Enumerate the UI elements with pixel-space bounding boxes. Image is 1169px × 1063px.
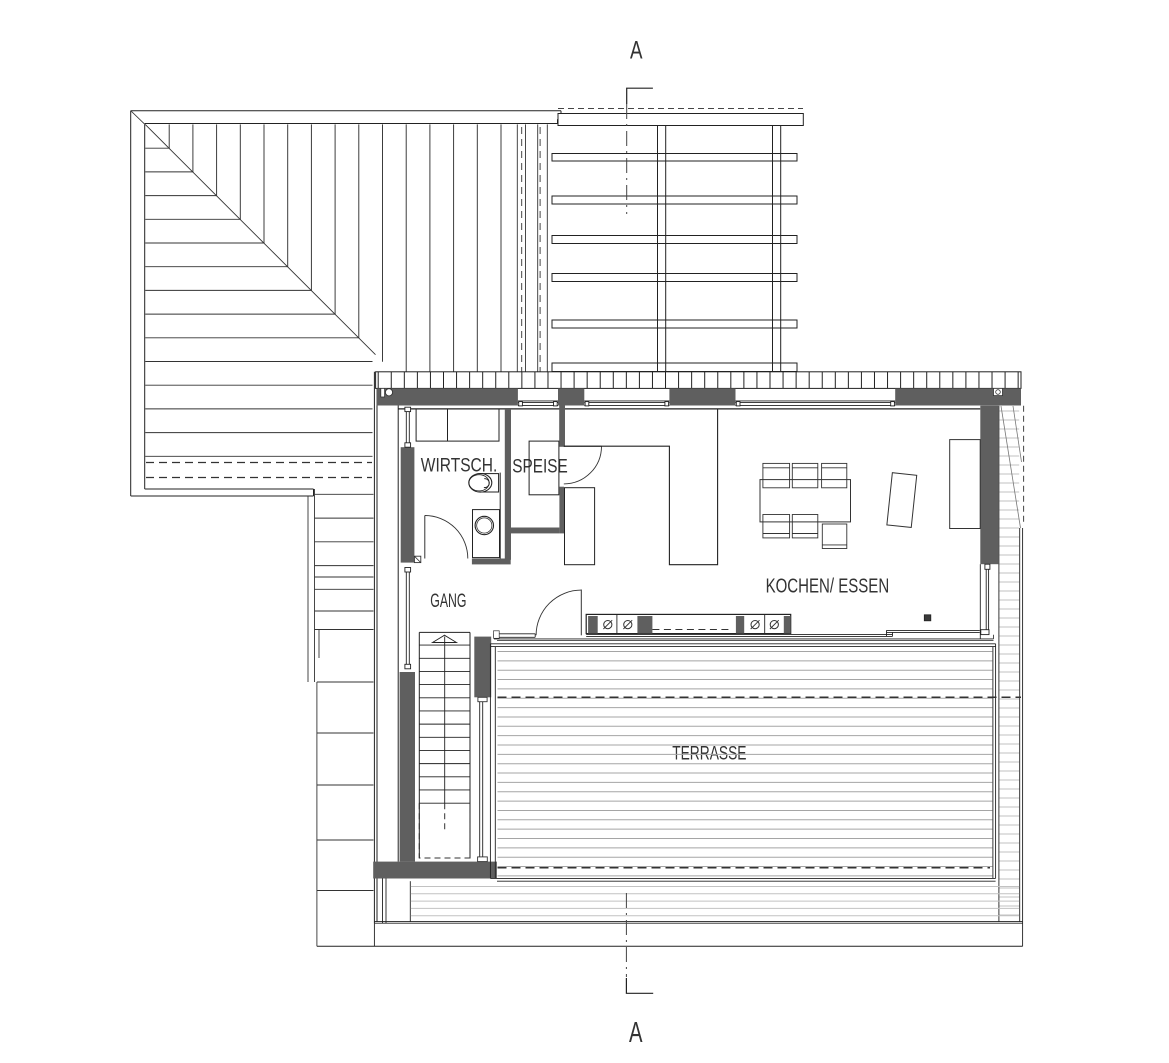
svg-text:KOCHEN/ ESSEN: KOCHEN/ ESSEN: [766, 575, 890, 598]
svg-text:TERRASSE: TERRASSE: [672, 742, 746, 764]
svg-text:SPEISE: SPEISE: [512, 456, 568, 478]
svg-text:GANG: GANG: [430, 590, 466, 612]
svg-text:A: A: [630, 37, 643, 65]
svg-text:A: A: [629, 1017, 643, 1049]
